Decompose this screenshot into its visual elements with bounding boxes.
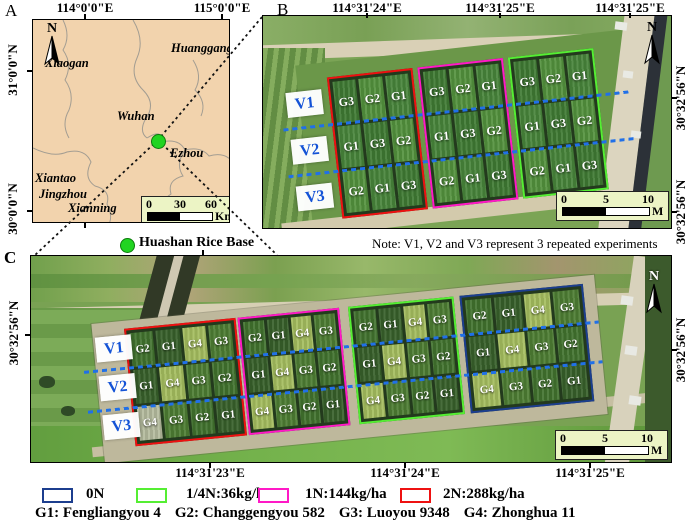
axis-tick	[84, 223, 86, 228]
plot-cell: G3	[427, 302, 452, 338]
plot-variety-label: G2	[348, 183, 365, 200]
plot-variety-label: G4	[366, 394, 381, 407]
treatment-block: G3G2G1G1G3G2G2G1G3	[417, 58, 518, 209]
axis-tick	[672, 349, 677, 351]
plot-cell: G1	[475, 64, 503, 108]
treatment-block: G2G1G4G3G1G4G3G2G4G3G2G1	[459, 284, 594, 414]
plot-variety-label: G3	[338, 93, 355, 110]
plot-variety-label: G1	[464, 170, 481, 187]
city-label: Wuhan	[117, 109, 155, 124]
latitude-label: 30°32'56"N	[6, 301, 22, 365]
plot-variety-label: G4	[479, 383, 494, 396]
axis-tick	[202, 250, 204, 255]
plot-cell: G2	[465, 298, 494, 334]
city-label: Xiantao	[35, 171, 76, 186]
city-label: Ezhou	[170, 146, 203, 161]
plot-variety-label: G1	[481, 77, 498, 94]
plot-variety-label: G3	[390, 392, 405, 405]
legend-swatch	[136, 488, 167, 503]
scale-unit: M	[651, 445, 662, 455]
panel-b-letter: B	[277, 0, 288, 20]
plot-cell: G4	[182, 326, 208, 362]
plot-cell: G3	[513, 59, 541, 103]
plot-variety-label: G4	[505, 343, 520, 356]
plot-variety-label: G1	[439, 387, 454, 400]
plot-variety-label: G3	[369, 135, 386, 152]
legend-swatch	[258, 488, 289, 503]
scale-bar-a: 0 30 60 Km	[141, 196, 230, 223]
plot-variety-label: G2	[195, 411, 210, 424]
plot-cell: G3	[501, 369, 530, 405]
plot-variety-label: G4	[165, 377, 180, 390]
plot-variety-label: G2	[436, 350, 451, 363]
axis-tick	[589, 463, 591, 468]
plot-variety-label: G2	[364, 90, 381, 107]
plot-variety-label: G4	[187, 337, 202, 350]
plot-cell: G1	[267, 318, 291, 354]
plot-cell: G2	[243, 320, 267, 356]
plot-cell: G2	[317, 350, 341, 386]
plot-cell: G3	[544, 101, 572, 145]
note-text: Note: V1, V2 and V3 represent 3 repeated…	[372, 236, 658, 252]
plot-variety-label: G2	[563, 338, 578, 351]
plot-cell: G3	[314, 313, 338, 349]
plot-cell: G2	[530, 366, 559, 402]
plot-cell: G1	[566, 54, 594, 98]
city-label: Jingzhou	[39, 187, 87, 202]
plot-variety-label: G3	[318, 324, 333, 337]
scale-unit: Km	[215, 211, 230, 221]
axis-tick	[27, 210, 32, 212]
scale-tick: 10	[642, 193, 654, 206]
site-marker-icon	[120, 238, 135, 253]
plot-variety-label: G2	[395, 132, 412, 149]
plot-cell: G1	[549, 146, 577, 190]
plot-cell: G3	[185, 363, 211, 399]
study-area-figure: A 114°0'0"E 115°0'0"E 31°0'0"N 30°0'0"N …	[0, 0, 691, 528]
plot-cell: G3	[385, 380, 410, 416]
plot-variety-label: G3	[550, 115, 567, 132]
plot-variety-label: G1	[567, 374, 582, 387]
plot-variety-label: G2	[302, 400, 317, 413]
treatment-block: G3G2G1G1G3G2G2G1G3	[327, 68, 428, 219]
plot-variety-label: G2	[576, 112, 593, 129]
site-marker-icon	[151, 134, 166, 149]
panel-a-region-map: N XiaoganHuanggangWuhanEzhouXiantaoJingz…	[32, 19, 230, 223]
axis-tick	[629, 13, 631, 18]
plot-cell: G2	[297, 389, 321, 425]
variety-legend-item: G1: Fengliangyou 4	[35, 505, 161, 522]
plot-variety-label: G1	[433, 128, 450, 145]
plot-variety-label: G2	[438, 173, 455, 190]
panel-b-aerial-view: G3G2G1G1G3G2G2G1G3G3G2G1G1G3G2G2G1G3G3G2…	[262, 15, 672, 229]
plot-variety-label: G2	[537, 377, 552, 390]
plot-variety-label: G1	[221, 408, 236, 421]
plot-variety-label: G3	[519, 73, 536, 90]
tree	[39, 376, 55, 388]
scale-bar-segment	[562, 447, 605, 454]
compass-needle-icon	[645, 283, 663, 315]
plot-variety-label: G1	[251, 368, 266, 381]
scale-bar-c: 0 5 10 M	[555, 430, 668, 460]
replicate-label: V2	[99, 373, 137, 401]
plot-cell: G2	[390, 118, 418, 162]
scale-bar-segment	[148, 213, 180, 220]
plot-cell: G2	[211, 360, 237, 396]
plot-cell: G4	[361, 383, 386, 419]
building	[615, 21, 628, 30]
legend-swatch	[400, 488, 431, 503]
replicate-label: V1	[95, 334, 133, 362]
variety-legend: G1: Fengliangyou 4G2: Changgengyou 582G3…	[35, 505, 575, 522]
plot-variety-label: G1	[343, 138, 360, 155]
plot-cell: G1	[518, 104, 546, 148]
plot-variety-label: G3	[581, 157, 598, 174]
city-label: Xianning	[68, 201, 117, 216]
plot-cell: G1	[378, 307, 403, 343]
plot-cell: G2	[523, 149, 551, 193]
legend-label: 0N	[86, 486, 104, 503]
panel-c-aerial-view: G2G1G4G3G1G4G3G2G4G3G2G1G2G1G4G3G1G4G3G2…	[30, 255, 672, 463]
scale-tick: 5	[603, 193, 609, 206]
plot-cell: G3	[527, 329, 556, 365]
plot-variety-label: G3	[400, 177, 417, 194]
plot-variety-label: G4	[255, 405, 270, 418]
plot-cell: G2	[449, 66, 477, 110]
plot-variety-label: G4	[387, 355, 402, 368]
plot-cell: G4	[523, 292, 552, 328]
north-arrow: N	[41, 22, 63, 72]
plot-variety-label: G3	[168, 414, 183, 427]
plot-cell: G3	[363, 121, 391, 165]
replicate-label: V3	[102, 412, 140, 440]
plot-variety-label: G2	[322, 361, 337, 374]
plot-cell: G1	[357, 346, 382, 382]
plot-cell: G2	[556, 326, 585, 362]
north-arrow: N	[643, 270, 665, 320]
plot-variety-label: G2	[135, 342, 150, 355]
plot-variety-label: G4	[530, 304, 545, 317]
plot-cell: G3	[576, 143, 604, 187]
axis-tick	[672, 97, 677, 99]
plot-cell: G1	[428, 114, 456, 158]
plot-variety-label: G1	[524, 118, 541, 135]
plot-cell: G2	[431, 339, 456, 375]
plot-cell: G3	[454, 111, 482, 155]
plot-cell: G3	[423, 69, 451, 113]
scale-bar-b: 0 5 10 M	[556, 191, 669, 221]
axis-tick	[25, 334, 30, 336]
variety-legend-item: G4: Zhonghua 11	[464, 505, 576, 522]
building	[628, 395, 641, 406]
plot-cell: G4	[270, 355, 294, 391]
plot-variety-label: G4	[275, 366, 290, 379]
plot-variety-label: G1	[390, 87, 407, 104]
plot-cell: G3	[332, 79, 360, 123]
plot-cell: G2	[480, 108, 508, 152]
plot-cell: G1	[215, 397, 241, 433]
plot-cell: G3	[406, 341, 431, 377]
plot-variety-label: G3	[213, 335, 228, 348]
plot-variety-label: G3	[278, 403, 293, 416]
plot-cell: G3	[163, 402, 189, 438]
north-letter: N	[643, 270, 665, 283]
legend-label: 1N:144kg/ha	[305, 486, 387, 503]
legend-swatch	[42, 488, 73, 503]
replicate-label: V2	[290, 136, 329, 165]
plot-variety-label: G2	[545, 70, 562, 87]
plot-cell: G1	[468, 335, 497, 371]
compass-needle-icon	[43, 35, 61, 67]
plot-variety-label: G1	[555, 160, 572, 177]
plot-variety-label: G3	[411, 353, 426, 366]
variety-legend-item: G3: Luoyou 9348	[339, 505, 450, 522]
plot-variety-label: G1	[374, 180, 391, 197]
north-letter: N	[41, 22, 63, 35]
scale-tick: 10	[641, 432, 653, 445]
plot-cell: G1	[559, 363, 588, 399]
plot-cell: G2	[189, 400, 215, 436]
treatment-legend: 0N1/4N:36kg/ha1N:144kg/ha2N:288kg/ha	[0, 486, 691, 506]
plot-variety-label: G1	[476, 346, 491, 359]
plot-cell: G1	[133, 368, 159, 404]
axis-tick	[404, 463, 406, 468]
city-label: Huanggang	[171, 41, 230, 56]
plot-variety-label: G3	[459, 125, 476, 142]
plot-cell: G2	[129, 331, 155, 367]
plot-cell: G2	[359, 76, 387, 120]
plot-cell: G4	[382, 344, 407, 380]
plot-variety-label: G2	[454, 80, 471, 97]
latitude-label: 30°0'0"N	[5, 183, 21, 234]
plot-variety-label: G2	[358, 321, 373, 334]
plot-cell: G1	[368, 166, 396, 210]
north-letter: N	[641, 21, 663, 34]
treatment-block: G3G2G1G1G3G2G2G1G3	[508, 48, 609, 199]
plot-cell: G1	[385, 74, 413, 118]
plot-cell: G4	[250, 394, 274, 430]
plot-cell: G3	[294, 352, 318, 388]
site-legend-label: Huashan Rice Base	[139, 235, 254, 251]
plot-cell: G4	[137, 405, 163, 441]
axis-tick	[84, 14, 86, 19]
plot-cell: G1	[459, 156, 487, 200]
plot-variety-label: G4	[142, 416, 157, 429]
scale-tick: 5	[602, 432, 608, 445]
plot-variety-label: G1	[139, 379, 154, 392]
plot-cell: G3	[395, 163, 423, 207]
compass-needle-icon	[643, 34, 661, 66]
plot-variety-label: G3	[298, 364, 313, 377]
plot-variety-label: G4	[408, 316, 423, 329]
plot-variety-label: G3	[559, 301, 574, 314]
scale-tick: 60	[205, 198, 217, 211]
latitude-label: 31°0'0"N	[5, 44, 21, 95]
building	[624, 345, 637, 356]
plot-cell: G3	[274, 391, 298, 427]
legend-label: 2N:288kg/ha	[443, 486, 525, 503]
plot-cell: G3	[208, 323, 234, 359]
plot-variety-label: G3	[534, 341, 549, 354]
plot-cell: G1	[494, 295, 523, 331]
plot-variety-label: G3	[432, 313, 447, 326]
plot-variety-label: G2	[472, 309, 487, 322]
plot-variety-label: G2	[415, 389, 430, 402]
plot-cell: G1	[156, 328, 182, 364]
replicate-label: V3	[296, 183, 335, 212]
scale-tick: 0	[561, 193, 567, 206]
plot-cell: G2	[342, 169, 370, 213]
plot-variety-label: G1	[161, 340, 176, 353]
plot-cell: G3	[485, 153, 513, 197]
treatment-block: G2G1G4G3G1G4G3G2G4G3G2G1	[124, 318, 247, 446]
plot-variety-label: G2	[247, 331, 262, 344]
plot-cell: G1	[435, 376, 460, 412]
plot-cell: G4	[159, 365, 185, 401]
plot-cell: G4	[290, 316, 314, 352]
plot-variety-label: G4	[295, 327, 310, 340]
plot-cell: G4	[498, 332, 527, 368]
plot-cell: G1	[321, 387, 345, 423]
plot-variety-label: G2	[486, 122, 503, 139]
plot-cell: G4	[472, 372, 501, 408]
plot-cell: G3	[552, 289, 581, 325]
axis-tick	[27, 70, 32, 72]
scale-tick: 0	[560, 432, 566, 445]
plot-variety-label: G3	[508, 380, 523, 393]
plot-variety-label: G1	[325, 398, 340, 411]
scale-bar-segment	[563, 208, 606, 215]
plot-variety-label: G1	[271, 329, 286, 342]
plot-variety-label: G2	[217, 372, 232, 385]
scale-tick: 30	[174, 198, 186, 211]
plot-variety-label: G3	[491, 167, 508, 184]
axis-tick	[672, 211, 677, 213]
axis-tick	[499, 13, 501, 18]
building	[620, 295, 633, 306]
plot-cell: G2	[571, 98, 599, 142]
plot-cell: G2	[433, 159, 461, 203]
plot-variety-label: G3	[191, 374, 206, 387]
axis-tick	[209, 463, 211, 468]
treatment-block: G2G1G4G3G1G4G3G2G4G3G2G1	[348, 297, 465, 425]
axis-tick	[366, 13, 368, 18]
plot-cell: G2	[539, 56, 567, 100]
replicate-label: V1	[285, 89, 324, 118]
panel-c-letter: C	[4, 248, 16, 268]
plot-cell: G4	[403, 304, 428, 340]
panel-a-letter: A	[5, 1, 17, 21]
tree	[61, 406, 75, 416]
plot-cell: G2	[410, 378, 435, 414]
axis-tick	[221, 14, 223, 19]
plot-variety-label: G1	[383, 318, 398, 331]
plot-cell: G1	[337, 124, 365, 168]
variety-legend-item: G2: Changgengyou 582	[175, 505, 325, 522]
plot-variety-label: G2	[529, 163, 546, 180]
building	[623, 70, 634, 78]
north-arrow: N	[641, 21, 663, 71]
plot-variety-label: G3	[428, 83, 445, 100]
treatment-block: G2G1G4G3G1G4G3G2G4G3G2G1	[237, 308, 350, 435]
scale-unit: M	[652, 206, 663, 216]
plot-variety-label: G1	[362, 357, 377, 370]
scale-tick: 0	[146, 198, 152, 211]
plot-variety-label: G1	[501, 307, 516, 320]
plot-cell: G1	[247, 357, 271, 393]
plot-variety-label: G1	[571, 67, 588, 84]
plot-cell: G2	[353, 309, 378, 345]
